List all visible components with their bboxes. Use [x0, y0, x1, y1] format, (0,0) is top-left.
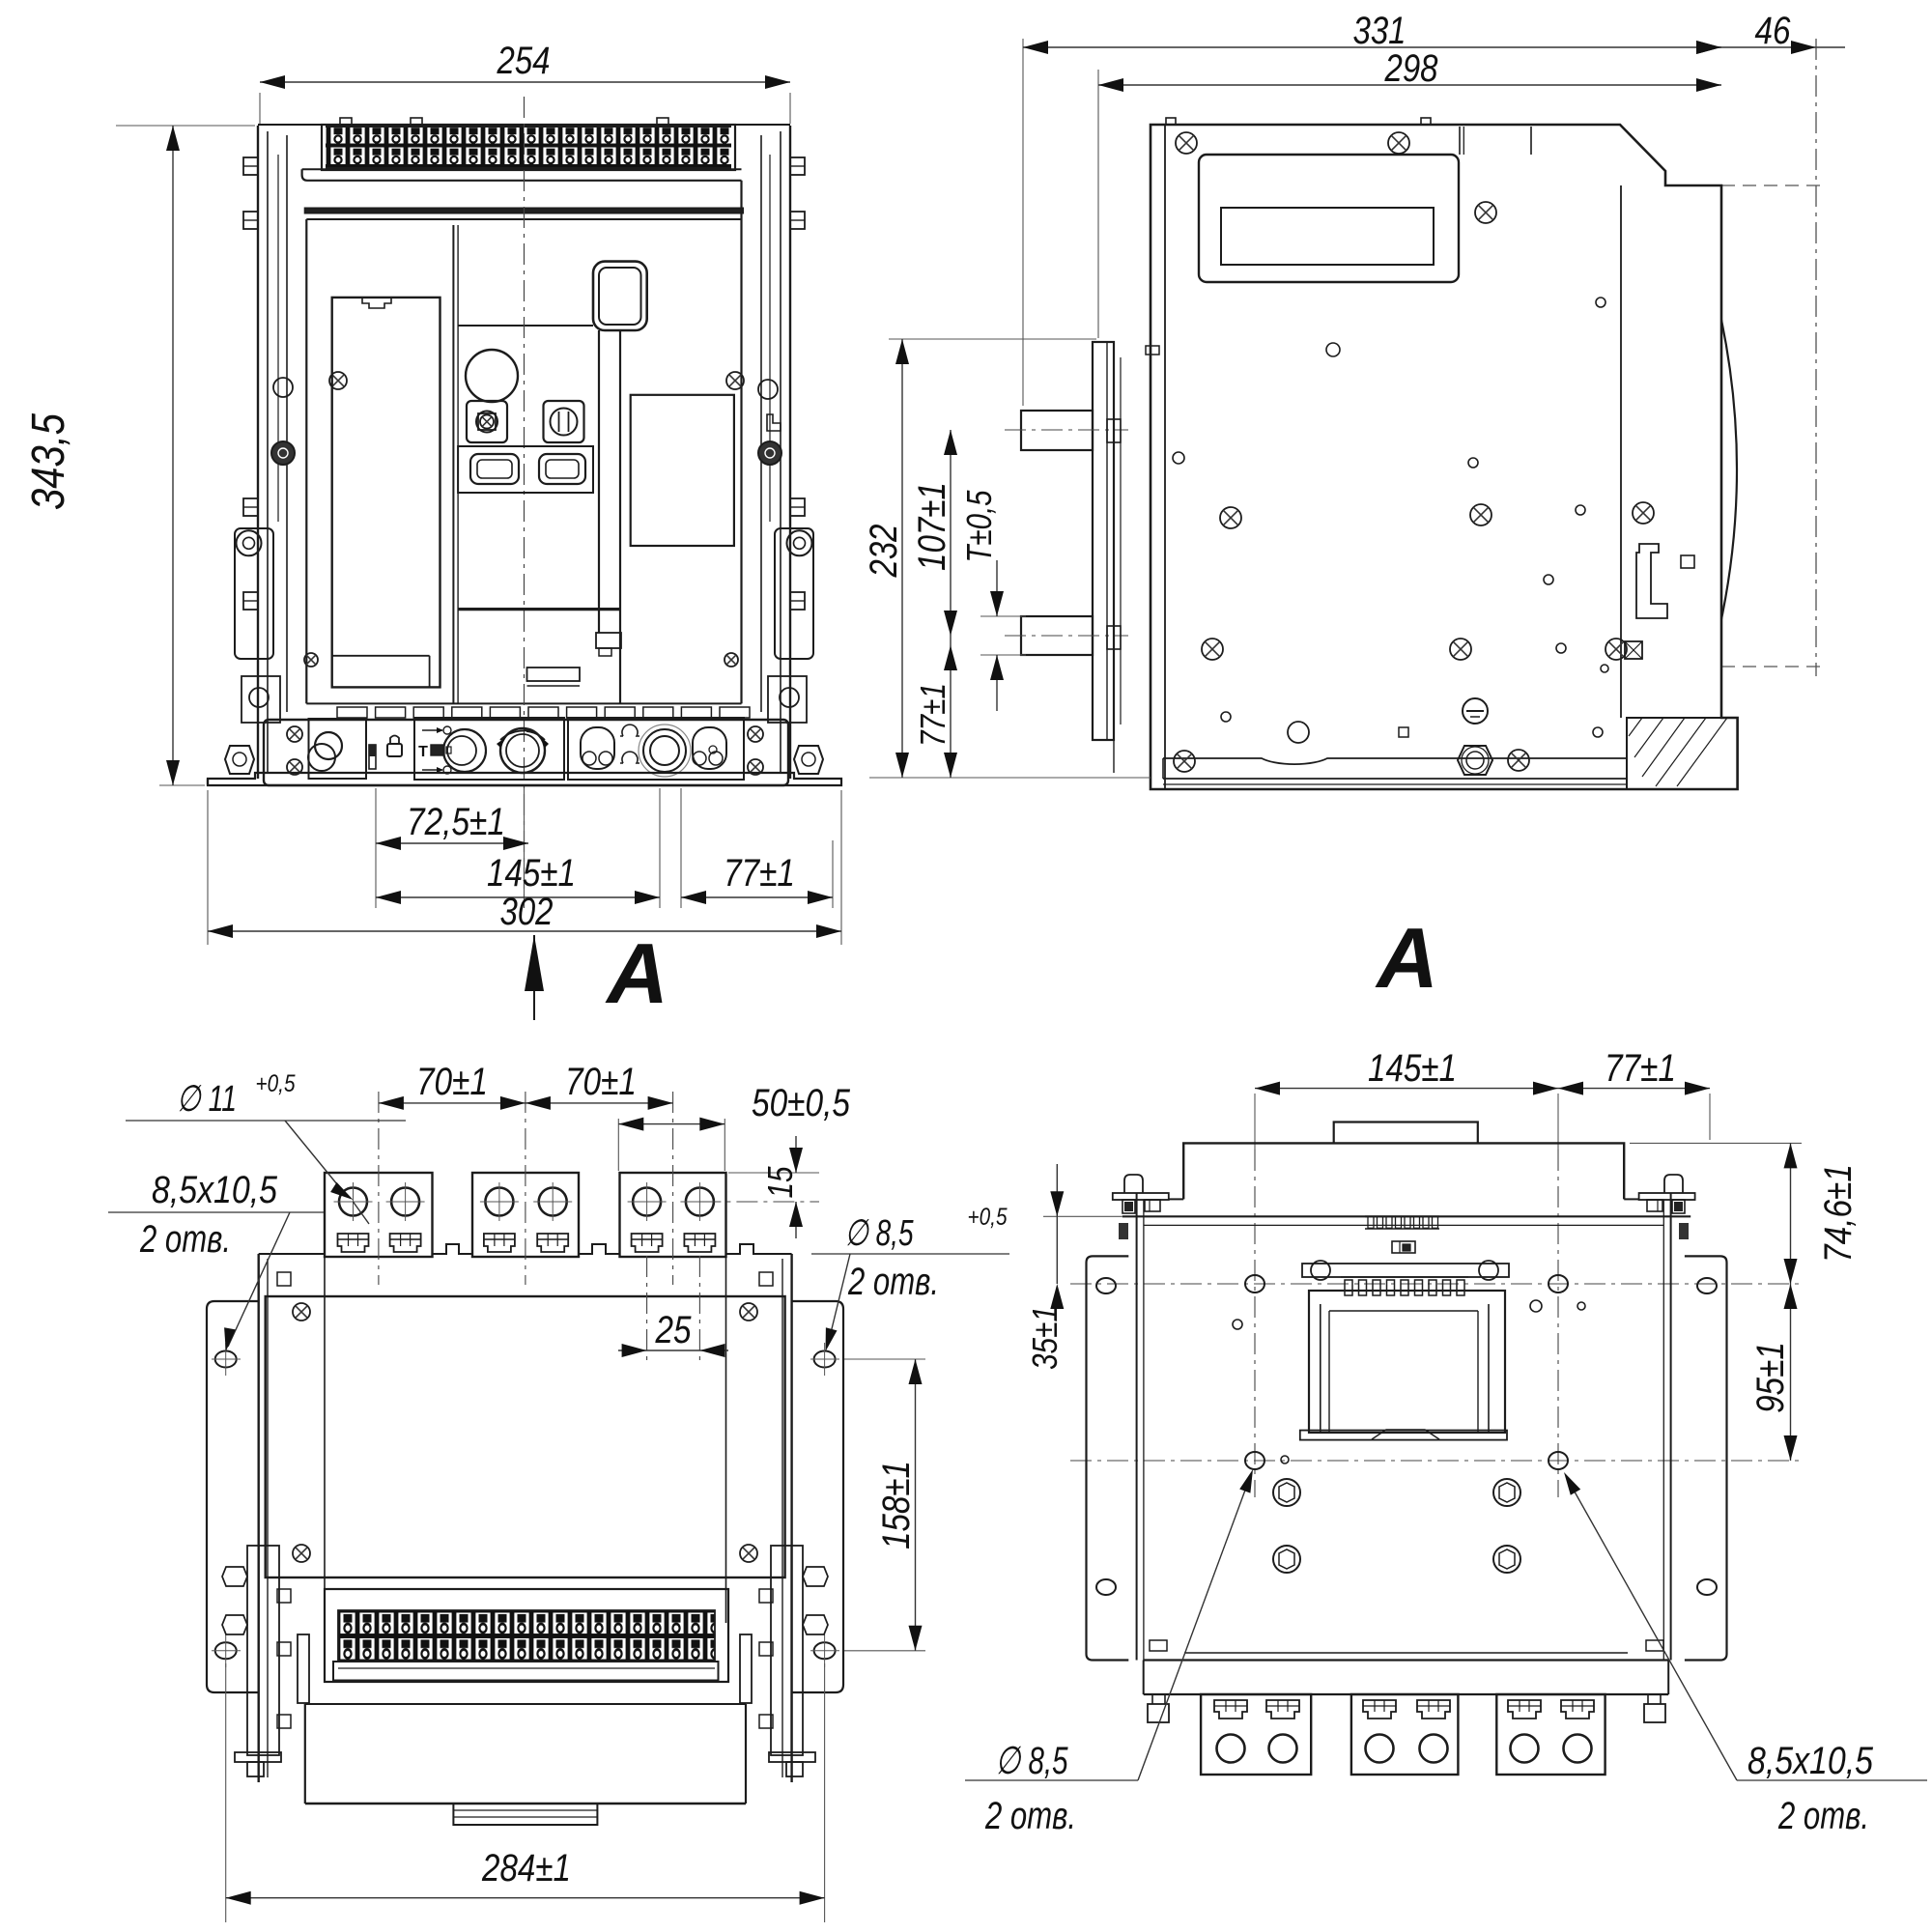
svg-text:8,5x10,5: 8,5x10,5 — [1747, 1740, 1874, 1782]
svg-text:∅ 8,5: ∅ 8,5 — [996, 1740, 1069, 1782]
svg-text:2 отв.: 2 отв. — [1777, 1795, 1869, 1837]
svg-text:15: 15 — [760, 1166, 800, 1199]
svg-text:107±1: 107±1 — [911, 482, 953, 571]
svg-text:72,5±1: 72,5±1 — [407, 801, 505, 843]
svg-text:77±1: 77±1 — [1605, 1047, 1676, 1090]
svg-text:25: 25 — [655, 1309, 692, 1351]
svg-text:A: A — [605, 925, 668, 1021]
svg-text:298: 298 — [1384, 47, 1438, 90]
svg-text:+0,5: +0,5 — [968, 1204, 1008, 1231]
svg-text:∅ 8,5: ∅ 8,5 — [845, 1213, 915, 1254]
svg-text:343,5: 343,5 — [23, 413, 74, 510]
svg-text:77±1: 77±1 — [724, 852, 795, 895]
svg-text:232: 232 — [863, 525, 905, 579]
svg-text:2 отв.: 2 отв. — [139, 1218, 231, 1261]
svg-text:2 отв.: 2 отв. — [847, 1261, 939, 1303]
svg-text:95±1: 95±1 — [1749, 1342, 1792, 1413]
svg-text:50±0,5: 50±0,5 — [752, 1082, 851, 1124]
svg-text:+0,5: +0,5 — [256, 1070, 296, 1097]
svg-text:158±1: 158±1 — [875, 1461, 918, 1549]
svg-text:254: 254 — [497, 40, 551, 82]
svg-text:T±0,5: T±0,5 — [959, 490, 999, 563]
svg-text:46: 46 — [1755, 10, 1792, 52]
svg-text:331: 331 — [1353, 10, 1406, 52]
svg-text:70±1: 70±1 — [565, 1061, 637, 1103]
svg-text:77±1: 77±1 — [913, 683, 952, 747]
svg-text:145±1: 145±1 — [487, 852, 576, 895]
svg-text:A: A — [1375, 910, 1438, 1006]
svg-text:T: T — [418, 744, 428, 760]
svg-text:∅ 11: ∅ 11 — [177, 1079, 237, 1120]
svg-text:2 отв.: 2 отв. — [984, 1795, 1076, 1837]
svg-text:8,5x10,5: 8,5x10,5 — [152, 1169, 278, 1211]
svg-text:284±1: 284±1 — [481, 1847, 571, 1889]
svg-text:70±1: 70±1 — [416, 1061, 488, 1103]
svg-text:302: 302 — [500, 891, 554, 933]
svg-text:35±1: 35±1 — [1025, 1306, 1065, 1370]
svg-text:145±1: 145±1 — [1368, 1047, 1457, 1090]
svg-text:74,6±1: 74,6±1 — [1817, 1164, 1860, 1263]
